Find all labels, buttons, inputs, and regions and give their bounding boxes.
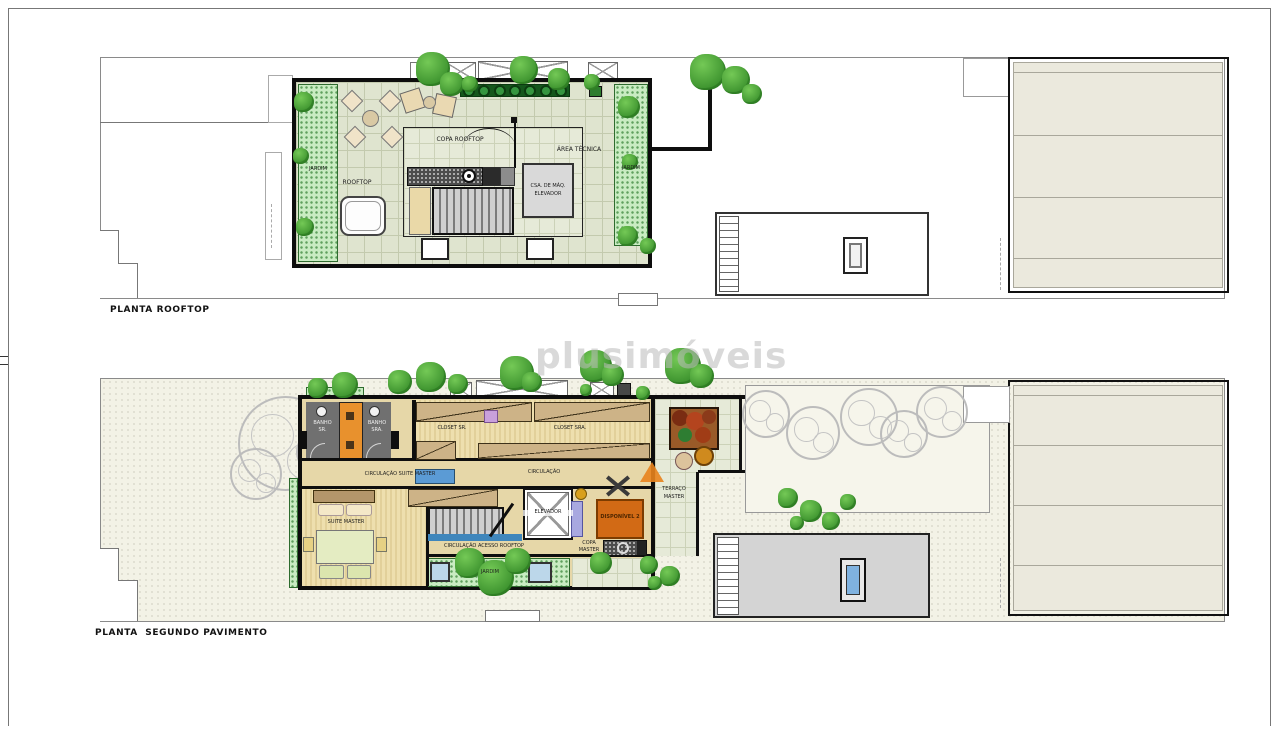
- bowl-icon: [694, 446, 714, 466]
- terraco-master: [655, 472, 699, 556]
- band-divider: [1013, 72, 1223, 73]
- door-jamb: [300, 431, 307, 449]
- dimension-mark: [1000, 238, 1001, 290]
- sink-icon: [316, 406, 327, 417]
- terraco-master-label: TERRAÇO: [652, 487, 696, 493]
- notch-line: [100, 548, 118, 549]
- closet-sr-label: CLOSET SR.: [424, 426, 480, 432]
- bed-icon: [316, 530, 374, 564]
- suite-master-label: SUITE MASTER: [318, 520, 374, 526]
- bed-cushion: [347, 565, 371, 579]
- fold-mark: [0, 356, 8, 357]
- stair-landing: [409, 187, 431, 235]
- plant-icon: [702, 410, 716, 424]
- tree-icon: [580, 384, 592, 396]
- nightstand-icon: [376, 537, 387, 552]
- roof-ladder-icon: [717, 537, 739, 615]
- hood-pole: [514, 120, 516, 168]
- notch-line: [118, 548, 119, 580]
- planter-pot-icon: [478, 85, 490, 97]
- counter-box: [500, 167, 515, 186]
- elevador-label: ELEVADOR: [523, 510, 573, 516]
- band-divider: [1013, 197, 1223, 198]
- spa-ring: [345, 201, 381, 231]
- lower-roof: [715, 212, 929, 296]
- nightstand-icon: [303, 537, 314, 552]
- cabinet-knob: [346, 412, 354, 420]
- boundary-step: [650, 147, 712, 151]
- planter-pot-icon: [509, 85, 521, 97]
- dimension-mark: [271, 204, 272, 248]
- neighbor-roof-bands: [1013, 385, 1223, 611]
- skylight-glass: [846, 565, 860, 595]
- survey-tab: [618, 293, 658, 306]
- site-notch: [100, 230, 118, 298]
- frame-left: [8, 8, 9, 726]
- skylight-icon: [528, 562, 552, 583]
- ottoman-icon: [484, 410, 498, 423]
- notch-line: [137, 580, 138, 621]
- jardim-strip-label: JARDIM: [470, 570, 510, 576]
- jardim-right-label: JARDIM: [614, 166, 648, 172]
- counter-box: [637, 541, 646, 555]
- side-setback: [265, 152, 282, 260]
- frame-right: [1270, 8, 1271, 726]
- skylight-inner: [849, 243, 862, 268]
- lounge-chair-icon: [432, 93, 457, 118]
- banho-sr-label: BANHO: [306, 421, 339, 427]
- fold-mark: [0, 364, 8, 365]
- planter-pot-icon: [494, 85, 506, 97]
- vent-box: [526, 238, 554, 260]
- table-icon: [362, 110, 379, 127]
- tree-icon: [790, 516, 804, 530]
- closet-cabinet: [478, 443, 650, 459]
- gray-tree-icon: [230, 448, 282, 500]
- headboard: [313, 490, 375, 503]
- side-box: [268, 75, 293, 123]
- bed-cushion: [319, 565, 344, 579]
- rooftop-label: ROOFTOP: [334, 180, 380, 187]
- tree-icon: [590, 552, 612, 574]
- gray-tree-icon: [916, 386, 968, 438]
- gray-tree-icon: [742, 390, 790, 438]
- roof-ladder-icon: [719, 216, 739, 292]
- neighbor-roof-bands: [1013, 62, 1223, 288]
- copa-master-label: COPA: [576, 541, 602, 547]
- tree-icon: [548, 68, 570, 90]
- hood-arc: [462, 128, 516, 170]
- notch-line: [137, 263, 138, 298]
- plan-segundo-title: PLANTA SEGUNDO PAVIMENTO: [95, 628, 267, 638]
- boundary-notch: [963, 386, 1010, 423]
- frame-top: [8, 8, 1271, 9]
- disponivel-2-label: DISPONÍVEL 2: [596, 515, 644, 521]
- stool-icon: [575, 488, 587, 500]
- dimension-mark: [1000, 558, 1001, 608]
- counter-box: [483, 167, 500, 186]
- circulacao-acesso-label: CIRCULAÇÃO ACESSO ROOFTOP: [424, 544, 544, 550]
- plan-rooftop-title: PLANTA ROOFTOP: [110, 305, 210, 315]
- closet-cabinet: [416, 402, 532, 422]
- lower-roof: [713, 533, 930, 618]
- boundary-step: [698, 470, 745, 473]
- grill-icon: [617, 542, 629, 554]
- planter-pot-icon: [524, 85, 536, 97]
- rooftop-stairs: [432, 187, 514, 235]
- skylight-icon: [430, 562, 450, 582]
- hedge: [289, 478, 298, 588]
- pillow-icon: [318, 504, 344, 516]
- tree-icon: [618, 96, 640, 118]
- gray-tree-icon: [786, 406, 840, 460]
- site-divider: [100, 122, 293, 123]
- band-divider: [1013, 135, 1223, 136]
- jardim-left-label: JARDIM: [302, 167, 334, 173]
- wall: [652, 395, 745, 399]
- grill-dot: [467, 174, 471, 178]
- notch-line: [100, 230, 118, 231]
- band-divider: [1013, 395, 1223, 396]
- tree-icon: [636, 386, 650, 400]
- boundary-notch: [963, 58, 1010, 97]
- notch-line: [118, 230, 119, 264]
- stair-runner: [428, 534, 522, 541]
- vent-box: [421, 238, 449, 260]
- floor-plan-sheet: JARDIM JARDIM COPA ROOFTOP ÁREA TÉCNICA …: [0, 0, 1280, 732]
- plant-icon: [695, 427, 711, 443]
- tree-icon: [800, 500, 822, 522]
- band-divider: [1013, 565, 1223, 566]
- notch-line: [118, 263, 137, 264]
- band-divider: [1013, 258, 1223, 259]
- sink-icon: [369, 406, 380, 417]
- cabinet-knob: [346, 441, 354, 449]
- copa-rooftop-label: COPA ROOFTOP: [405, 137, 515, 144]
- notch-line: [118, 580, 137, 581]
- band-divider: [1013, 445, 1223, 446]
- casa-maquinas-label: CSA. DE MÁQ.: [522, 184, 574, 190]
- hood-dot: [511, 117, 517, 123]
- stair-upper-flight: [408, 489, 498, 507]
- door-jamb: [391, 431, 399, 449]
- casa-maquinas-label: ELEVADOR: [522, 192, 574, 198]
- copa-master-label: MASTER: [574, 548, 604, 554]
- plant-icon: [678, 428, 692, 442]
- bench-icon: [571, 501, 583, 537]
- site-notch: [118, 580, 137, 621]
- closet-cabinet: [534, 402, 650, 422]
- pillow-icon: [346, 504, 372, 516]
- banho-sr-label: SR.: [306, 428, 339, 434]
- watermark: plusimóveis: [535, 336, 787, 377]
- survey-tab: [485, 610, 540, 622]
- closet-sra-label: CLOSET SRA.: [540, 426, 600, 432]
- table-icon: [675, 452, 693, 470]
- closet-cabinet: [416, 441, 456, 460]
- banho-sra-label: SRA.: [363, 428, 391, 434]
- area-tecnica-label: ÁREA TÉCNICA: [540, 147, 618, 154]
- linen-cabinet: [339, 402, 363, 460]
- site-notch: [118, 263, 137, 298]
- terraco-master-label: MASTER: [654, 495, 694, 501]
- site-notch: [100, 548, 118, 621]
- circulacao-suite-label: CIRCULAÇÃO SUITE MASTER: [340, 472, 460, 478]
- banho-sra-label: BANHO: [363, 421, 391, 427]
- circulacao-label: CIRCULAÇÃO: [516, 470, 572, 476]
- band-divider: [1013, 505, 1223, 506]
- side-table-icon: [423, 96, 436, 109]
- tree-icon: [648, 576, 662, 590]
